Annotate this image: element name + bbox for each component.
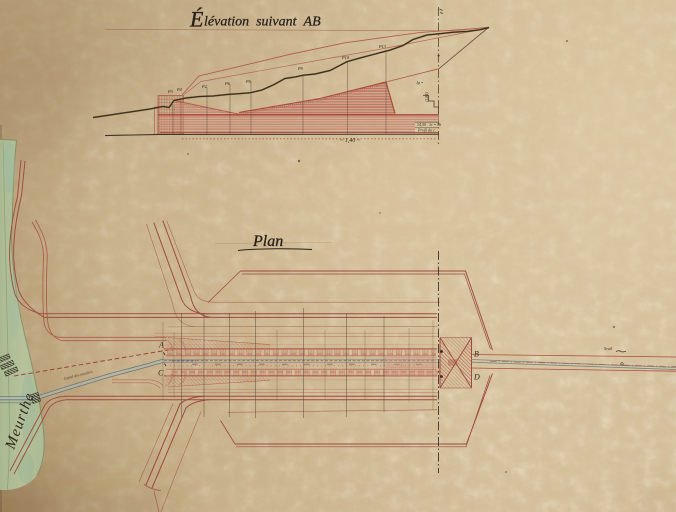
svg-text:P4: P4 — [176, 87, 183, 92]
svg-text:Profil du c.: Profil du c. — [417, 128, 436, 133]
svg-text:D: D — [473, 373, 480, 382]
svg-text:P5: P5 — [245, 79, 252, 84]
svg-text:É: É — [189, 7, 204, 32]
svg-text:~ 1,40 ~: ~ 1,40 ~ — [340, 137, 361, 144]
svg-text:P10: P10 — [341, 55, 350, 60]
svg-text:Jg =: Jg = — [416, 80, 424, 85]
svg-text:P6: P6 — [224, 81, 231, 86]
svg-text:P9: P9 — [297, 66, 304, 71]
svg-text:A: A — [158, 341, 164, 350]
svg-text:Seuil: Seuil — [604, 346, 613, 351]
svg-text:P13: P13 — [378, 44, 386, 49]
svg-text:lévation suivant AB: lévation suivant AB — [204, 15, 321, 30]
svg-text:P3: P3 — [167, 89, 173, 94]
svg-text:Plan: Plan — [252, 233, 283, 250]
svg-text:B: B — [474, 350, 479, 359]
svg-text:P2: P2 — [201, 84, 208, 89]
svg-text:C: C — [158, 369, 164, 378]
